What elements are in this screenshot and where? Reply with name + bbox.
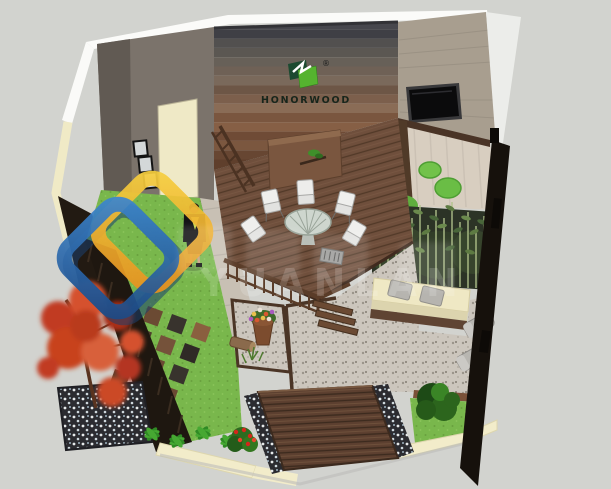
- front-platform: [258, 386, 398, 470]
- brand-logo-text: HONORWOOD: [261, 95, 351, 106]
- garden-render: ® HONORWOOD: [0, 0, 611, 489]
- registered-mark: ®: [322, 59, 330, 68]
- moss-circle-2: [435, 178, 461, 198]
- chair-by-cabinet: [297, 179, 315, 204]
- gravel-garden: [229, 300, 290, 372]
- watermark-letters: YUANLAN: [199, 261, 467, 305]
- moss-circle-1: [419, 162, 441, 178]
- render-canvas: ® HONORWOOD: [0, 0, 611, 489]
